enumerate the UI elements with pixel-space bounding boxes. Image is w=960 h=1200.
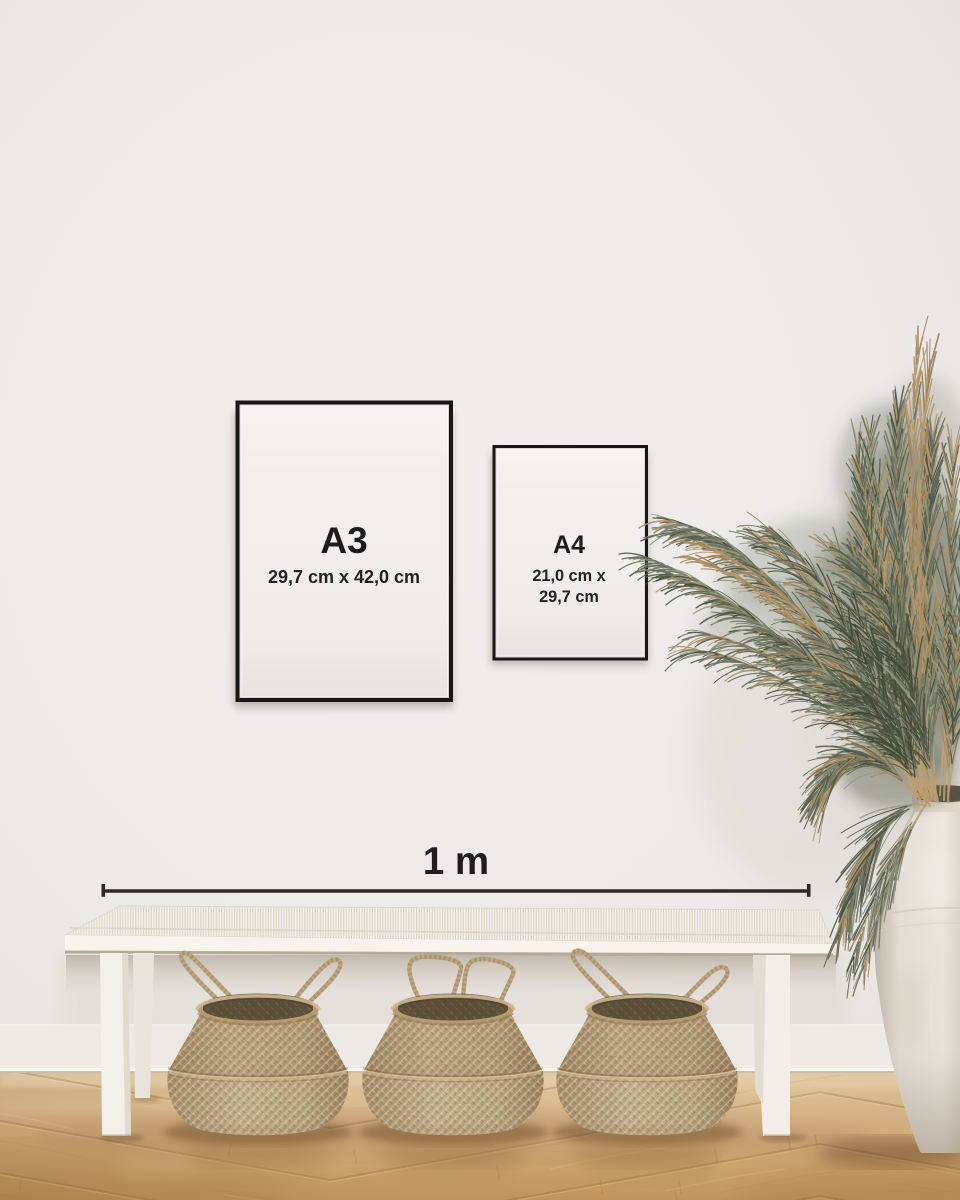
svg-text:21,0 cm x: 21,0 cm x [532, 567, 605, 585]
svg-text:A3: A3 [320, 520, 367, 561]
svg-text:29,7 cm: 29,7 cm [539, 588, 599, 606]
svg-text:1 m: 1 m [423, 840, 489, 883]
svg-text:A4: A4 [553, 531, 585, 559]
svg-text:29,7 cm x 42,0 cm: 29,7 cm x 42,0 cm [268, 567, 420, 587]
